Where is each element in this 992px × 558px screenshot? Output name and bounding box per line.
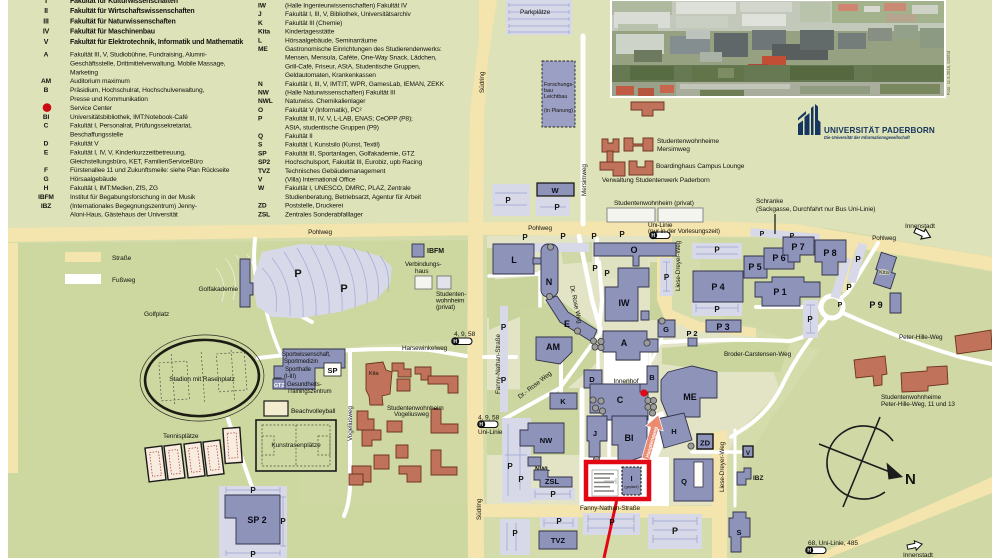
svg-text:P 9: P 9 <box>869 300 882 310</box>
svg-text:68, Uni-Linie, 485: 68, Uni-Linie, 485 <box>808 540 858 547</box>
svg-text:Fakultät III, V, Studiobühne,: Fakultät III, V, Studiobühne, Fundraisin… <box>70 52 207 59</box>
svg-text:Kunstrasenplätze: Kunstrasenplätze <box>271 442 321 449</box>
svg-text:Poststelle, Druckerei: Poststelle, Druckerei <box>285 203 344 210</box>
svg-text:L: L <box>258 37 262 44</box>
svg-text:Fakultät I, IV, V, Kinderkurzz: Fakultät I, IV, V, Kinderkurzzeitbetreuu… <box>70 149 186 156</box>
svg-text:Auditorium maximum: Auditorium maximum <box>70 78 130 85</box>
svg-text:P: P <box>664 273 670 282</box>
svg-text:P: P <box>672 526 678 536</box>
svg-text:P: P <box>554 203 560 212</box>
svg-text:Beachvolleyball: Beachvolleyball <box>291 408 336 415</box>
svg-text:(I-III): (I-III) <box>284 374 296 380</box>
svg-text:Liese-Dreyer-Weg: Liese-Dreyer-Weg <box>719 441 726 492</box>
svg-text:Straße: Straße <box>112 255 132 262</box>
svg-text:Aloni-Haus, Gästehaus der Univ: Aloni-Haus, Gästehaus der Universität <box>70 212 178 219</box>
svg-text:Kita: Kita <box>879 270 890 276</box>
svg-text:(Internationales Begegnungszen: (Internationales Begegnungszentrum) Jenn… <box>70 203 197 210</box>
svg-text:F: F <box>44 167 48 174</box>
svg-text:Parkplätze: Parkplätze <box>520 9 551 16</box>
svg-text:P: P <box>714 305 720 314</box>
svg-text:4, 9, 58: 4, 9, 58 <box>478 415 500 422</box>
svg-text:Fanny-Nathan-Straße: Fanny-Nathan-Straße <box>495 334 502 394</box>
svg-text:P: P <box>807 315 813 324</box>
svg-text:S: S <box>258 142 263 149</box>
svg-text:Universitätsbibliothek, IMT:No: Universitätsbibliothek, IMT:Notebook-Caf… <box>70 114 188 121</box>
svg-text:IV: IV <box>43 29 50 36</box>
svg-text:Beschaffungsstelle: Beschaffungsstelle <box>70 132 124 139</box>
svg-text:Grill-Café, Friseur, AStA, Stu: Grill-Café, Friseur, AStA, Studentische … <box>285 63 421 70</box>
svg-text:SP: SP <box>258 150 267 157</box>
svg-text:(Halle Naturwissenschaften) Fa: (Halle Naturwissenschaften) Fakultät III <box>285 90 396 97</box>
svg-text:E: E <box>564 319 570 329</box>
svg-text:P: P <box>592 264 598 273</box>
svg-text:P: P <box>507 462 513 471</box>
svg-text:Fakultät V: Fakultät V <box>70 141 99 148</box>
svg-text:O: O <box>258 107 263 114</box>
svg-text:P: P <box>518 475 524 484</box>
svg-text:TVZ: TVZ <box>258 168 270 175</box>
svg-text:Service Center: Service Center <box>70 105 113 112</box>
svg-text:Studentenwohnheime: Studentenwohnheime <box>657 138 719 145</box>
svg-text:P 4: P 4 <box>711 282 724 292</box>
svg-text:Fakultät I, UNESCO, DMRC, PLAZ: Fakultät I, UNESCO, DMRC, PLAZ, Zentrale <box>285 185 411 192</box>
svg-text:Peter-Hille-Weg: Peter-Hille-Weg <box>899 334 943 341</box>
svg-text:Fakultät für Maschinenbau: Fakultät für Maschinenbau <box>70 29 155 36</box>
svg-text:Gleichstellungsbüro, KET, Fami: Gleichstellungsbüro, KET, FamilienServic… <box>70 158 203 165</box>
svg-text:P: P <box>522 233 528 242</box>
svg-text:N: N <box>258 81 263 88</box>
svg-text:Pohlweg: Pohlweg <box>872 235 896 242</box>
svg-text:P: P <box>855 255 861 264</box>
svg-text:(Sackgasse, Durchfahrt nur Bus: (Sackgasse, Durchfahrt nur Bus Uni-Linie… <box>756 206 875 213</box>
svg-text:ZD: ZD <box>700 439 711 448</box>
svg-text:Pohlweg: Pohlweg <box>528 225 552 232</box>
svg-text:Hörsaalgebäude, Seminarräume: Hörsaalgebäude, Seminarräume <box>285 37 377 44</box>
svg-text:P: P <box>505 196 511 205</box>
svg-text:Kita: Kita <box>369 371 380 377</box>
svg-text:P: P <box>280 517 286 526</box>
svg-text:W: W <box>258 185 265 192</box>
svg-text:P: P <box>560 232 566 241</box>
svg-text:B: B <box>44 87 49 94</box>
svg-text:G: G <box>663 325 669 334</box>
svg-text:Fakultät I, III, V, Bibliothek: Fakultät I, III, V, Bibliothek, Universi… <box>285 11 412 18</box>
svg-text:NW: NW <box>258 90 270 97</box>
svg-text:Fakultät für Kulturwissenschaf: Fakultät für Kulturwissenschaften <box>70 0 178 5</box>
svg-text:P: P <box>838 302 843 309</box>
svg-text:Pohlweg: Pohlweg <box>308 229 332 236</box>
svg-text:P: P <box>501 323 507 332</box>
svg-text:Tennisplätze: Tennisplätze <box>163 433 199 440</box>
svg-text:Gastronomische Einrichtungen d: Gastronomische Einrichtungen des Studier… <box>285 46 442 53</box>
svg-text:N: N <box>905 471 916 488</box>
svg-text:Fußweg: Fußweg <box>112 277 136 284</box>
svg-text:P 7: P 7 <box>791 242 804 252</box>
svg-text:Leichtbau: Leichtbau <box>544 94 567 100</box>
svg-text:V: V <box>746 450 751 457</box>
svg-text:NW: NW <box>540 436 553 445</box>
svg-text:P: P <box>619 230 625 239</box>
svg-text:Fakultät für Elektrotechnik, I: Fakultät für Elektrotechnik, Informatik … <box>70 39 243 46</box>
svg-text:Innenstadt: Innenstadt <box>903 552 933 558</box>
svg-text:Innenstadt: Innenstadt <box>905 223 935 230</box>
svg-text:V: V <box>258 177 263 184</box>
svg-text:K: K <box>560 397 566 406</box>
svg-text:Presse und Kommunikation: Presse und Kommunikation <box>70 96 148 103</box>
svg-text:Foto: 11.5.2015, 520thd: Foto: 11.5.2015, 520thd <box>946 50 951 95</box>
svg-text:TVZ: TVZ <box>551 536 566 545</box>
svg-text:P: P <box>604 269 610 278</box>
svg-text:Naturwiss. Chemikalienlager: Naturwiss. Chemikalienlager <box>285 98 366 105</box>
svg-text:Peter-Hille-Weg, 11 und 13: Peter-Hille-Weg, 11 und 13 <box>881 401 955 408</box>
svg-text:K: K <box>258 20 263 27</box>
svg-text:Kindertagesstätte: Kindertagesstätte <box>285 29 335 36</box>
svg-text:4, 9, 58: 4, 9, 58 <box>454 331 476 338</box>
svg-text:P: P <box>760 231 765 238</box>
svg-text:Liese-Dreyer-Weg: Liese-Dreyer-Weg <box>675 240 682 291</box>
svg-text:H: H <box>671 427 676 436</box>
svg-text:P 2: P 2 <box>686 329 697 338</box>
svg-text:haus: haus <box>415 268 428 275</box>
svg-text:IBZ: IBZ <box>41 203 51 210</box>
svg-text:UNIVERSITÄT PADERBORN: UNIVERSITÄT PADERBORN <box>824 126 935 135</box>
svg-text:ME: ME <box>258 46 268 53</box>
svg-text:I: I <box>630 474 632 483</box>
svg-text:D: D <box>44 141 49 148</box>
svg-text:O: O <box>630 245 637 255</box>
svg-text:(geplant): (geplant) <box>624 485 638 489</box>
svg-text:Verwaltung Studentenwerk Pader: Verwaltung Studentenwerk Paderborn <box>602 177 710 184</box>
svg-text:H: H <box>807 548 811 554</box>
svg-text:AStA, studentische Gruppen (P9: AStA, studentische Gruppen (P9) <box>285 124 379 131</box>
svg-text:P: P <box>550 490 556 499</box>
svg-text:N: N <box>546 277 553 287</box>
svg-text:V: V <box>44 39 49 46</box>
svg-text:Studienberatung, Betriebsarzt,: Studienberatung, Betriebsarzt, Agentur f… <box>285 194 421 201</box>
svg-text:P: P <box>556 517 562 526</box>
svg-text:P 1: P 1 <box>773 287 786 297</box>
svg-text:Zentrales Sonderabfalllager: Zentrales Sonderabfalllager <box>285 211 364 218</box>
svg-text:Die Universität der Informatio: Die Universität der Informationsgesellsc… <box>824 135 910 140</box>
svg-text:BI: BI <box>43 114 50 121</box>
svg-text:D: D <box>589 375 595 384</box>
svg-text:Fakultät I, Personalrat, Prüfu: Fakultät I, Personalrat, Prüfungssekreta… <box>70 123 192 130</box>
svg-text:AM: AM <box>546 342 560 352</box>
svg-text:Südring: Südring <box>476 498 483 520</box>
svg-text:Mersimweg: Mersimweg <box>581 164 588 196</box>
svg-text:I: I <box>45 0 47 5</box>
svg-text:Studentenwohnheime: Studentenwohnheime <box>881 394 942 401</box>
svg-text:Fakultät III (Chemie): Fakultät III (Chemie) <box>285 20 342 27</box>
svg-text:Sportwissenschaft,: Sportwissenschaft, <box>282 352 331 358</box>
svg-text:A: A <box>621 338 628 348</box>
svg-text:Fakultät I, III, V, IMT:IT, WP: Fakultät I, III, V, IMT:IT, WPR, GamesLa… <box>285 81 445 88</box>
svg-text:G: G <box>43 176 48 183</box>
svg-text:P: P <box>591 232 597 241</box>
svg-text:Institut für Begabungsforschun: Institut für Begabungsforschung in der M… <box>70 194 196 201</box>
svg-text:E: E <box>44 149 49 156</box>
svg-text:Golfakademie: Golfakademie <box>199 286 239 293</box>
svg-text:Mensen, Mensula, Caféte, One-W: Mensen, Mensula, Caféte, One-Way Snack, … <box>285 55 437 62</box>
svg-text:Boardinghaus Campus Lounge: Boardinghaus Campus Lounge <box>656 163 745 170</box>
svg-text:Fakultät für Wirtschaftswissen: Fakultät für Wirtschaftswissenschaften <box>70 8 195 15</box>
svg-text:P: P <box>294 268 301 280</box>
svg-text:Golfplatz: Golfplatz <box>144 311 169 318</box>
svg-text:SP2: SP2 <box>258 159 271 166</box>
svg-text:IBFM: IBFM <box>427 248 444 255</box>
svg-text:H: H <box>453 339 457 345</box>
svg-text:Fakultät II: Fakultät II <box>285 133 313 140</box>
svg-text:(privat): (privat) <box>436 304 455 311</box>
svg-text:H: H <box>44 185 49 192</box>
svg-text:AM: AM <box>41 78 52 85</box>
svg-text:P 5: P 5 <box>748 262 761 272</box>
svg-text:P: P <box>250 486 256 495</box>
svg-text:Hochschulsport, Fakultät III,: Hochschulsport, Fakultät III, Eurobiz, u… <box>285 159 423 166</box>
svg-text:Innenhof: Innenhof <box>614 378 639 385</box>
svg-text:J: J <box>593 429 597 438</box>
svg-text:Mersimweg: Mersimweg <box>657 146 690 153</box>
svg-text:A: A <box>44 52 49 59</box>
svg-text:B: B <box>649 373 655 382</box>
svg-text:Trainingszentrum: Trainingszentrum <box>287 389 332 395</box>
svg-text:Gesundheits-: Gesundheits- <box>287 382 322 388</box>
svg-text:J: J <box>258 11 262 18</box>
svg-text:L: L <box>511 255 517 265</box>
svg-text:GTZ: GTZ <box>274 383 285 389</box>
svg-text:Q: Q <box>681 477 687 486</box>
svg-text:Marketing: Marketing <box>70 69 98 76</box>
svg-text:Vogeliusweg: Vogeliusweg <box>394 411 429 418</box>
svg-text:Schranke: Schranke <box>756 198 783 205</box>
svg-text:Südring: Südring <box>479 71 486 93</box>
svg-text:Harsewinkelweg: Harsewinkelweg <box>402 345 448 352</box>
svg-text:Fakultät V (Informatik), PC²: Fakultät V (Informatik), PC² <box>285 107 362 114</box>
svg-text:ZSL: ZSL <box>258 211 270 218</box>
svg-text:Fürstenallee 11 und Zukunftsme: Fürstenallee 11 und Zukunftsmeile: siehe… <box>70 167 230 174</box>
svg-text:(Halle Ingenieurwissenschaften: (Halle Ingenieurwissenschaften) Fakultät… <box>285 3 408 10</box>
svg-text:Verbindungs-: Verbindungs- <box>405 261 441 268</box>
svg-text:Q: Q <box>258 133 263 140</box>
svg-text:S: S <box>736 528 741 537</box>
svg-text:ZD: ZD <box>258 203 267 210</box>
svg-text:III: III <box>43 18 49 25</box>
svg-text:(Villa) International Office: (Villa) International Office <box>285 177 356 184</box>
svg-text:IW: IW <box>258 3 267 10</box>
svg-text:W: W <box>551 186 559 195</box>
svg-text:Stadion mit Rasenplatz: Stadion mit Rasenplatz <box>169 376 235 383</box>
svg-text:Fanny-Nathan-Straße: Fanny-Nathan-Straße <box>580 505 640 512</box>
svg-text:P: P <box>512 529 518 538</box>
svg-text:Präsidium, Hochschulrat, Hochs: Präsidium, Hochschulrat, Hochschulverwal… <box>70 87 205 94</box>
svg-text:ME: ME <box>683 392 697 402</box>
svg-text:P: P <box>258 116 263 123</box>
svg-text:P: P <box>846 283 852 292</box>
svg-text:II: II <box>44 8 48 15</box>
svg-text:P: P <box>714 246 720 255</box>
svg-text:(in Planung): (in Planung) <box>544 108 573 114</box>
svg-text:C: C <box>617 395 624 405</box>
svg-text:P: P <box>340 283 347 295</box>
svg-text:ZSL: ZSL <box>545 477 560 486</box>
svg-text:Sportmedizin: Sportmedizin <box>284 359 318 365</box>
svg-text:IBFM: IBFM <box>38 194 54 201</box>
svg-text:NWL: NWL <box>258 98 273 105</box>
svg-text:Fakultät I, Kunstsilo (Kunst,: Fakultät I, Kunstsilo (Kunst, Textil) <box>285 142 380 149</box>
svg-text:Fakultät für Naturwissenschaft: Fakultät für Naturwissenschaften <box>70 18 176 25</box>
svg-text:BI: BI <box>625 433 634 443</box>
svg-text:Geldautomaten, Krankenkassen: Geldautomaten, Krankenkassen <box>285 72 376 79</box>
svg-text:IW: IW <box>619 298 631 308</box>
svg-text:P: P <box>250 550 256 558</box>
svg-text:Fakultät III, Sportanlagen, Go: Fakultät III, Sportanlagen, Golfakademie… <box>285 150 415 157</box>
svg-text:P: P <box>790 233 795 240</box>
svg-text:P: P <box>609 518 615 527</box>
svg-text:Broder-Carstensen-Weg: Broder-Carstensen-Weg <box>724 351 792 358</box>
svg-text:C: C <box>44 123 49 130</box>
svg-text:Kita: Kita <box>258 29 270 36</box>
svg-text:Geschäftsstelle, Drittmittelve: Geschäftsstelle, Drittmittelverwaltung, … <box>70 60 226 67</box>
svg-text:Uni-Linie: Uni-Linie <box>478 429 503 436</box>
svg-text:Fakultät III, IV, V, L-LAB, EN: Fakultät III, IV, V, L-LAB, ENAS; CeOPP … <box>285 116 413 123</box>
svg-text:Fakultät I, IMT:Medien, ZfS, Z: Fakultät I, IMT:Medien, ZfS, ZG <box>70 185 158 192</box>
svg-text:Vogeliusweg: Vogeliusweg <box>347 406 354 441</box>
svg-text:Hörsaalgebäude: Hörsaalgebäude <box>70 176 117 183</box>
svg-text:H: H <box>479 422 483 428</box>
svg-text:SP 2: SP 2 <box>247 515 266 525</box>
svg-text:IBZ: IBZ <box>753 475 764 482</box>
svg-text:Studentenwohnheim (privat): Studentenwohnheim (privat) <box>614 200 694 207</box>
svg-text:(nur in der Vorlesungszeit): (nur in der Vorlesungszeit) <box>648 228 720 235</box>
svg-text:P 8: P 8 <box>823 248 836 258</box>
svg-text:Sporthalle: Sporthalle <box>285 367 312 373</box>
svg-text:SP: SP <box>327 366 337 375</box>
svg-text:P 3: P 3 <box>716 322 729 332</box>
svg-text:Technisches Gebäudemanagement: Technisches Gebäudemanagement <box>285 168 386 175</box>
